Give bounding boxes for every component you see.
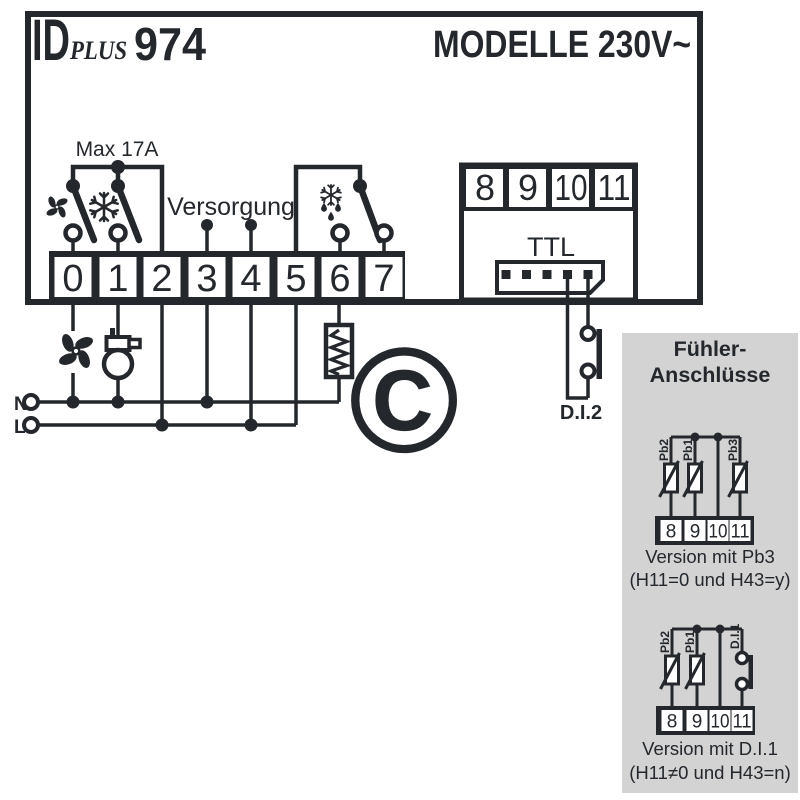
brand-plus-text: PLUS: [69, 36, 127, 65]
di1-contact-bottom: [737, 679, 748, 690]
relay-defrost: [296, 167, 392, 253]
terminal-0: 0: [62, 258, 83, 300]
panel-title-line2: Anschlüsse: [650, 363, 771, 387]
terminal-4: 4: [240, 258, 261, 300]
wiring-diagram-page: © ID PLUS 974 MODELLE 230V~ N L: [0, 0, 800, 800]
relay-defrost-frame: [296, 167, 360, 251]
pb2-label: Pb2: [657, 439, 671, 461]
panel-title-line1: Fühler-: [674, 337, 747, 361]
variant1-caption-line1: Version mit Pb3: [645, 546, 775, 567]
v2-terminal-11: 11: [733, 712, 752, 733]
supply-connection: Versorgung: [167, 193, 295, 253]
supply-label: Versorgung: [167, 193, 295, 221]
fan-icon: [57, 332, 94, 369]
di1-contact-top: [737, 653, 748, 664]
terminal-6: 6: [329, 258, 350, 300]
contact-circle-t6: [333, 226, 348, 241]
terminal-5: 5: [285, 258, 306, 300]
neutral-terminal-circle: [24, 395, 38, 409]
fan-small-icon: [45, 195, 68, 218]
copyright-watermark: ©: [349, 316, 460, 484]
compressor-icon: [104, 328, 140, 378]
terminal-11: 11: [598, 167, 631, 208]
di2-label: D.I.2: [560, 402, 602, 424]
terminal-2: 2: [151, 258, 172, 300]
v1-terminal-9: 9: [690, 522, 701, 543]
cooling-snowflake-icon: [90, 193, 118, 221]
variant2-caption-line1: Version mit D.I.1: [642, 738, 778, 759]
relay-fan-compressor: Max 17A: [45, 138, 162, 253]
variant2-caption-line2: (H11≠0 und H43=n): [629, 762, 791, 783]
terminal-7: 7: [373, 258, 394, 300]
contact-circle-t0: [66, 226, 81, 241]
v2-terminal-9: 9: [692, 712, 703, 733]
contact-circle-t7: [377, 226, 392, 241]
defrost-icon: [321, 185, 341, 221]
terminal-8: 8: [475, 167, 495, 208]
ttl-label: TTL: [527, 232, 575, 262]
v2-terminal-10: 10: [711, 712, 730, 733]
pb3-label: Pb3: [726, 439, 740, 461]
terminal-strip-main: 0 1 2 3 4 5 6 7: [49, 251, 405, 303]
di1-contact-bar: [749, 655, 754, 689]
contact-circle-t1: [111, 226, 126, 241]
terminal-1: 1: [107, 258, 128, 300]
voltage-model-label: MODELLE 230V~: [433, 24, 691, 66]
brand-logo: ID PLUS 974: [32, 8, 206, 73]
heater-icon: [326, 325, 352, 377]
mains-lines: N L: [14, 394, 339, 438]
v1-terminal-11: 11: [731, 522, 750, 543]
terminal-3: 3: [196, 258, 217, 300]
terminal-9: 9: [518, 167, 538, 208]
pb1-label-v2: Pb1: [683, 631, 697, 653]
sensor-panel: Fühler- Anschlüsse Pb2 Pb1 Pb3 8 9 10: [622, 333, 798, 793]
v2-terminal-8: 8: [667, 712, 678, 733]
max-current-label: Max 17A: [76, 138, 159, 161]
di2-contact-top: [582, 327, 595, 340]
pb2-label-v2: Pb2: [658, 631, 672, 653]
terminal-10: 10: [555, 167, 588, 208]
brand-model-text: 974: [134, 18, 206, 70]
v1-terminal-10: 10: [709, 522, 728, 543]
pb1-label: Pb1: [681, 439, 695, 461]
di2-contact-bottom: [582, 365, 595, 378]
line-terminal-circle: [24, 418, 38, 432]
di1-label: D.I.1: [728, 623, 742, 649]
comm-block: 8 9 10 11 TTL: [460, 163, 637, 300]
brand-id-text: ID: [32, 8, 70, 73]
variant1-caption-line2: (H11=0 und H43=y): [629, 569, 790, 590]
di2-contact-bar: [597, 329, 603, 379]
v1-terminal-8: 8: [666, 522, 677, 543]
wiring-diagram-canvas: © ID PLUS 974 MODELLE 230V~ N L: [0, 0, 800, 800]
